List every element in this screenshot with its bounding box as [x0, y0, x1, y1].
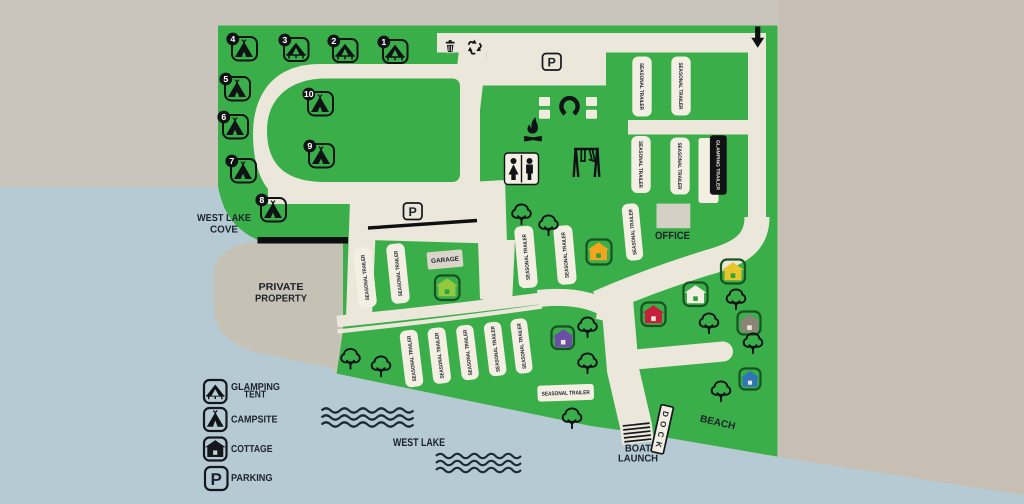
svg-text:2: 2: [331, 36, 336, 46]
svg-text:6: 6: [221, 112, 226, 122]
svg-text:PRIVATE: PRIVATE: [259, 282, 304, 293]
svg-text:COVE: COVE: [210, 225, 238, 236]
svg-text:7: 7: [229, 156, 234, 166]
svg-text:SEASONAL TRAILER: SEASONAL TRAILER: [676, 143, 682, 190]
svg-text:P: P: [211, 470, 222, 489]
svg-text:GLAMPING TRAILER: GLAMPING TRAILER: [716, 140, 721, 191]
svg-text:PROPERTY: PROPERTY: [255, 294, 307, 305]
svg-text:1: 1: [381, 37, 386, 47]
svg-text:9: 9: [307, 141, 312, 151]
svg-text:CAMPSITE: CAMPSITE: [231, 415, 278, 426]
svg-text:OFFICE: OFFICE: [655, 230, 690, 242]
svg-text:3: 3: [282, 35, 287, 45]
svg-text:SEASONAL TRAILER: SEASONAL TRAILER: [677, 63, 683, 110]
svg-text:COTTAGE: COTTAGE: [231, 444, 273, 455]
svg-text:8: 8: [259, 195, 264, 205]
svg-text:SEASONAL TRAILER: SEASONAL TRAILER: [638, 63, 644, 110]
svg-text:10: 10: [304, 89, 314, 99]
svg-text:TENT: TENT: [244, 390, 266, 401]
svg-text:LAUNCH: LAUNCH: [618, 454, 658, 465]
svg-text:PARKING: PARKING: [231, 473, 273, 484]
svg-text:4: 4: [230, 34, 235, 44]
svg-text:WEST LAKE: WEST LAKE: [393, 437, 445, 449]
svg-text:WEST LAKE: WEST LAKE: [197, 213, 251, 224]
svg-text:5: 5: [223, 74, 228, 84]
svg-text:SEASONAL TRAILER: SEASONAL TRAILER: [637, 141, 643, 188]
